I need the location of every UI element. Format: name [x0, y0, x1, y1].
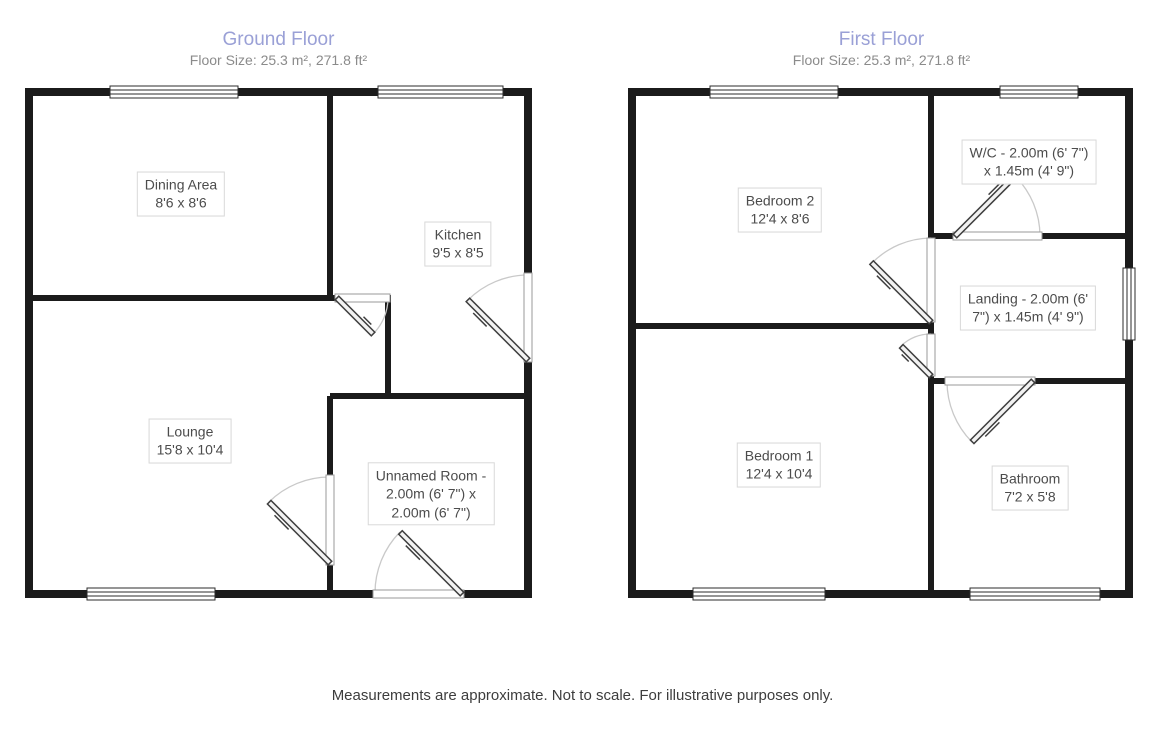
room-label-landing: Landing - 2.00m (6' 7") x 1.45m (4' 9")	[960, 286, 1096, 331]
room-label-line: Lounge	[157, 423, 224, 441]
room-label-line: 15'8 x 10'4	[157, 441, 224, 459]
room-label-dining-area: Dining Area 8'6 x 8'6	[137, 172, 225, 217]
room-label-line: 7") x 1.45m (4' 9")	[968, 308, 1088, 326]
room-label-lounge: Lounge 15'8 x 10'4	[149, 419, 232, 464]
room-label-line: 8'6 x 8'6	[145, 194, 217, 212]
window-icon	[110, 86, 238, 98]
window-icon	[1000, 86, 1078, 98]
window-icon	[970, 588, 1100, 600]
window-icon	[710, 86, 838, 98]
room-label-line: Bedroom 1	[745, 447, 813, 465]
room-label-bathroom: Bathroom 7'2 x 5'8	[992, 466, 1069, 511]
window-icon	[693, 588, 825, 600]
window-icon	[378, 86, 503, 98]
room-label-line: W/C - 2.00m (6' 7")	[970, 144, 1089, 162]
floorplan-canvas	[0, 0, 1165, 734]
room-label-line: 12'4 x 8'6	[746, 210, 814, 228]
room-label-line: Unnamed Room -	[376, 466, 487, 484]
room-label-kitchen: Kitchen 9'5 x 8'5	[424, 222, 491, 267]
floorplan-page: Ground Floor Floor Size: 25.3 m², 271.8 …	[0, 0, 1165, 734]
room-label-line: Bathroom	[1000, 470, 1061, 488]
room-label-line: x 1.45m (4' 9")	[970, 162, 1089, 180]
room-label-line: 12'4 x 10'4	[745, 465, 813, 483]
room-label-wc: W/C - 2.00m (6' 7") x 1.45m (4' 9")	[962, 140, 1097, 185]
room-label-line: 7'2 x 5'8	[1000, 488, 1061, 506]
room-label-line: Kitchen	[432, 226, 483, 244]
window-icon	[87, 588, 215, 600]
room-label-line: Landing - 2.00m (6'	[968, 290, 1088, 308]
window-icon	[1123, 268, 1135, 340]
room-label-line: Bedroom 2	[746, 192, 814, 210]
disclaimer-text: Measurements are approximate. Not to sca…	[0, 687, 1165, 704]
room-label-unnamed-room: Unnamed Room - 2.00m (6' 7") x 2.00m (6'…	[368, 462, 495, 525]
room-label-line: Dining Area	[145, 176, 217, 194]
room-label-bedroom-1: Bedroom 1 12'4 x 10'4	[737, 443, 821, 488]
room-label-line: 2.00m (6' 7")	[376, 503, 487, 521]
room-label-line: 9'5 x 8'5	[432, 244, 483, 262]
room-label-line: 2.00m (6' 7") x	[376, 485, 487, 503]
room-label-bedroom-2: Bedroom 2 12'4 x 8'6	[738, 188, 822, 233]
